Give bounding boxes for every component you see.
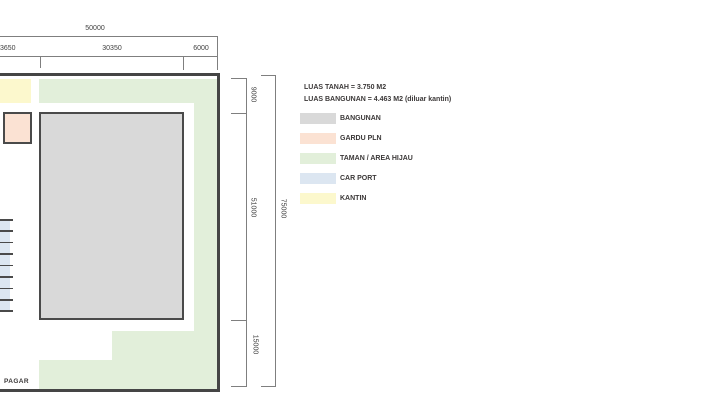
dim-right-total-line: [275, 75, 276, 387]
carport-stall: [0, 243, 10, 253]
legend-swatch-gardu-pln: [300, 133, 336, 144]
dim-tick: [40, 56, 41, 68]
summary-luas-bangunan: LUAS BANGUNAN = 4.463 M2 (diluar kantin): [304, 96, 451, 103]
garden-right-strip: [194, 79, 217, 389]
fence-right-border: [217, 73, 220, 391]
dim-top-segment-1-label: 3650: [0, 44, 16, 53]
carport-stall: [0, 289, 10, 299]
carport-stall: [0, 278, 10, 288]
fence-bottom-border: [0, 389, 220, 392]
building-area: [39, 112, 184, 320]
legend-label-car-port: CAR PORT: [340, 175, 377, 182]
site-plan-drawing: 50000 3650 30350 6000 PAGAR 9000 51000 1…: [0, 0, 720, 420]
gardu-pln-area: [3, 112, 32, 144]
dim-top-total-line: [0, 36, 218, 37]
dim-tick: [231, 386, 246, 387]
legend-label-bangunan: BANGUNAN: [340, 115, 381, 122]
legend-swatch-taman: [300, 153, 336, 164]
dim-tick: [231, 320, 246, 321]
dim-top-segments-line: [0, 56, 218, 57]
garden-bottom-left: [39, 360, 112, 389]
legend-label-gardu-pln: GARDU PLN: [340, 135, 382, 142]
dim-right-segment-1-label: 9000: [248, 75, 257, 115]
dim-right-total-label: 75000: [278, 189, 287, 229]
garden-top-strip: [39, 79, 217, 103]
dim-tick: [231, 113, 246, 114]
dim-tick: [183, 56, 184, 70]
dim-right-segments-line: [246, 78, 247, 387]
summary-luas-tanah: LUAS TANAH = 3.750 M2: [304, 84, 386, 91]
kantin-area: [0, 79, 31, 103]
legend-item: TAMAN / AREA HIJAU: [300, 153, 413, 164]
dim-top-segment-3-label: 6000: [181, 44, 221, 53]
carport-stalls: [0, 219, 13, 312]
pagar-label: PAGAR: [4, 378, 29, 385]
dim-right-segment-3-label: 15000: [250, 325, 259, 365]
legend-label-kantin: KANTIN: [340, 195, 366, 202]
carport-stall: [0, 221, 10, 231]
legend-item: CAR PORT: [300, 173, 377, 184]
legend-item: KANTIN: [300, 193, 366, 204]
dim-tick: [261, 386, 275, 387]
fence-top-border: [0, 73, 220, 76]
carport-divider: [0, 310, 13, 312]
legend-item: GARDU PLN: [300, 133, 382, 144]
legend-swatch-bangunan: [300, 113, 336, 124]
dim-tick: [261, 75, 275, 76]
dim-tick: [217, 36, 218, 70]
carport-stall: [0, 255, 10, 265]
legend-swatch-kantin: [300, 193, 336, 204]
legend-item: BANGUNAN: [300, 113, 381, 124]
carport-stall: [0, 232, 10, 242]
carport-stall: [0, 266, 10, 276]
dim-tick: [231, 78, 246, 79]
legend-swatch-car-port: [300, 173, 336, 184]
dim-top-total-label: 50000: [75, 24, 115, 33]
carport-stall: [0, 301, 10, 311]
dim-top-segment-2-label: 30350: [92, 44, 132, 53]
legend-label-taman: TAMAN / AREA HIJAU: [340, 155, 413, 162]
dim-right-segment-2-label: 51000: [248, 188, 257, 228]
garden-bottom-mid: [112, 331, 194, 389]
